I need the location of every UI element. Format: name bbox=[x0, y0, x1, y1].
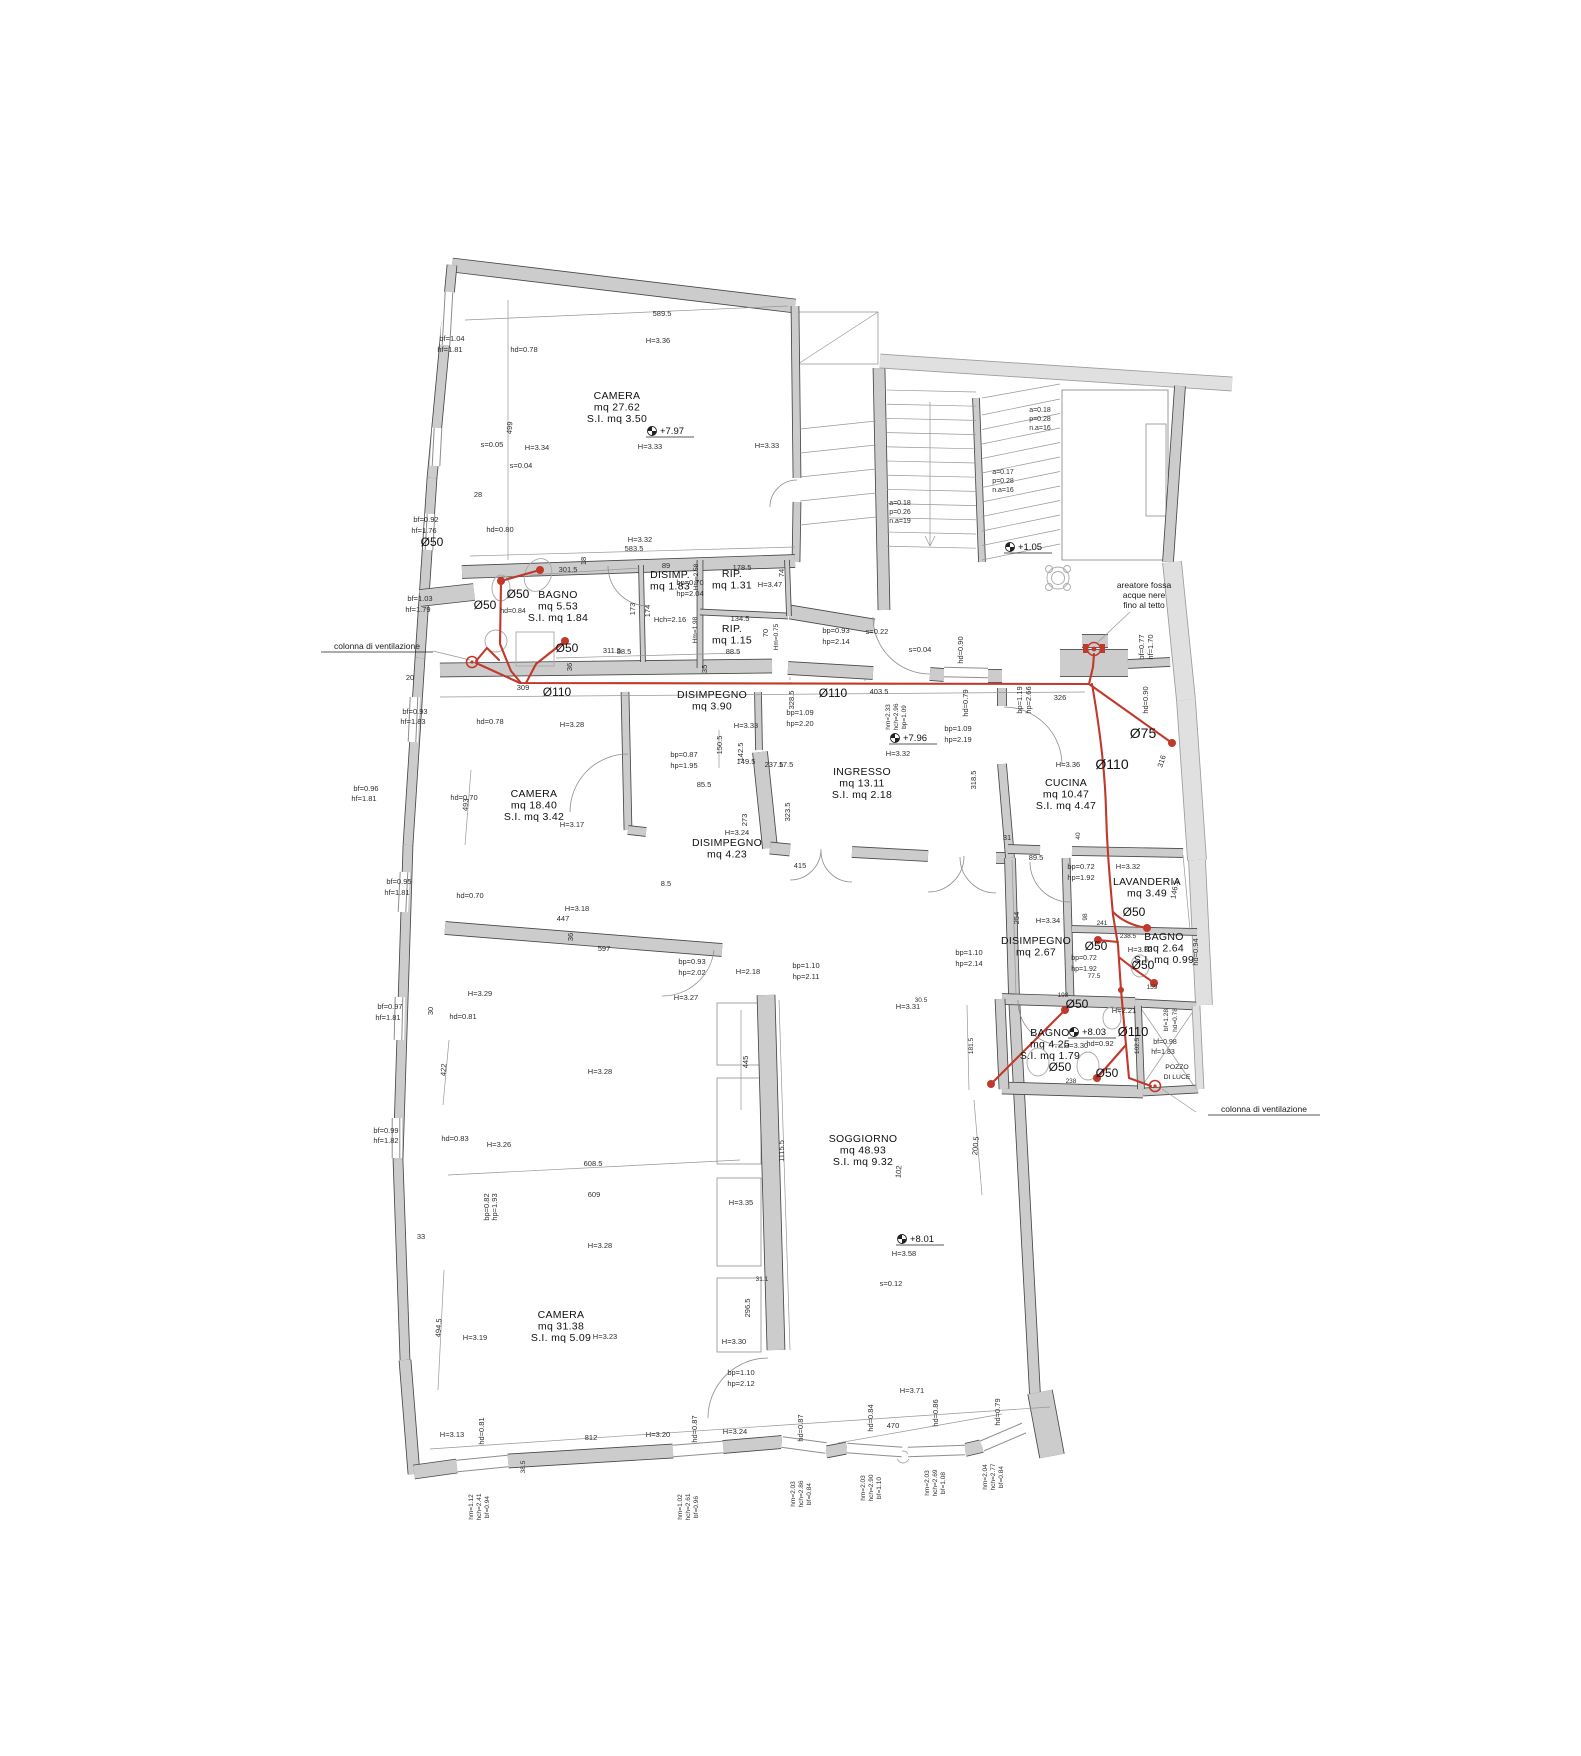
dim-label: 589.5 bbox=[653, 309, 672, 318]
wall-segment bbox=[1197, 860, 1204, 1005]
pipe-label: Ø75 bbox=[1130, 725, 1157, 741]
dim-label: n.a=16 bbox=[992, 487, 1014, 494]
room-label: S.I. mq 4.47 bbox=[1036, 800, 1096, 812]
dim-label: hp=2.66 bbox=[1024, 686, 1033, 713]
dim-label: 31 bbox=[1003, 833, 1011, 842]
dim-label: 326 bbox=[1054, 693, 1067, 702]
ramp-line bbox=[800, 493, 876, 501]
wall-segment bbox=[1008, 849, 1040, 850]
dim-label: a=0.17 bbox=[992, 469, 1014, 476]
wall-segment bbox=[1128, 662, 1170, 664]
stairs-layer bbox=[800, 384, 1060, 560]
floor-drain-ornament bbox=[1046, 566, 1071, 591]
door-swing bbox=[821, 851, 852, 882]
dim-label: Hm=1.98 bbox=[692, 616, 699, 643]
dim-label: H=3.19 bbox=[463, 1333, 487, 1342]
ramp-line bbox=[800, 517, 876, 525]
room-label: BAGNO bbox=[1144, 931, 1183, 943]
dim-label: bp=1.09 bbox=[901, 705, 908, 729]
dim-label: 30 bbox=[426, 1007, 435, 1015]
dim-label: 415 bbox=[794, 861, 807, 870]
dim-label: p=0.28 bbox=[1029, 416, 1051, 423]
stair-tread bbox=[982, 443, 1060, 459]
wall-segment bbox=[790, 612, 874, 626]
room-label: CAMERA bbox=[538, 1309, 585, 1321]
dim-label: Hch=2.16 bbox=[654, 615, 686, 624]
stair-tread bbox=[887, 546, 976, 548]
dim-label: H=3.23 bbox=[593, 1332, 617, 1341]
note-label: colonna di ventilazione bbox=[1221, 1104, 1307, 1114]
dimension-line bbox=[838, 1414, 1002, 1443]
dim-label: 146.5 bbox=[1168, 880, 1180, 900]
dim-label: H=3.47 bbox=[758, 580, 782, 589]
dim-label: H=3.28 bbox=[588, 1067, 612, 1076]
dim-label: hd=0.78 bbox=[476, 717, 503, 726]
dim-label: 422 bbox=[439, 1063, 449, 1076]
stair-tread bbox=[887, 404, 976, 406]
level-marker-icon bbox=[902, 1239, 907, 1244]
dimension-line bbox=[433, 651, 470, 660]
dim-label: bf=0.96 bbox=[693, 1496, 700, 1518]
dim-label: 403.5 bbox=[870, 687, 889, 696]
dim-label: hch=2.61 bbox=[685, 1493, 692, 1520]
room-label: mq 1.31 bbox=[712, 580, 752, 592]
pipe-label: Ø50 bbox=[1096, 1066, 1119, 1080]
dim-label: 200.5 bbox=[970, 1136, 981, 1155]
dim-label: hd=0.86 bbox=[931, 1399, 940, 1426]
wall-segment bbox=[420, 478, 432, 658]
dim-label: bp=1.10 bbox=[792, 961, 819, 970]
door-swing bbox=[928, 856, 964, 892]
note-label: areatore fossa bbox=[1117, 580, 1172, 590]
dim-label: 316 bbox=[1155, 754, 1167, 769]
dim-label: Hm=0.75 bbox=[773, 623, 780, 650]
stair-tread bbox=[887, 390, 976, 392]
dim-label: hd=0.90 bbox=[956, 636, 965, 663]
dim-label: p=0.26 bbox=[889, 509, 911, 516]
level-label: +7.97 bbox=[660, 426, 684, 437]
drain-branch bbox=[476, 648, 499, 661]
dim-label: hf=1.83 bbox=[1151, 1049, 1175, 1056]
wall-segment bbox=[795, 306, 797, 478]
ramp-line bbox=[800, 421, 876, 429]
fixture-connection bbox=[1168, 739, 1176, 747]
pipe-label: Ø50 bbox=[507, 587, 530, 601]
dim-label: hm=2.03 bbox=[924, 1470, 931, 1496]
dim-label: hp=2.02 bbox=[678, 968, 705, 977]
dim-label: H=3.32 bbox=[1128, 945, 1152, 954]
aerator-flange bbox=[1100, 644, 1105, 653]
dim-label: H=3.71 bbox=[900, 1386, 924, 1395]
dim-label: hd=0.79 bbox=[961, 689, 970, 716]
dim-label: H=3.30 bbox=[1064, 1041, 1088, 1050]
dim-label: hp=2.14 bbox=[822, 637, 849, 646]
dim-label: hf=1.81 bbox=[384, 888, 409, 897]
dim-label: 470 bbox=[887, 1421, 900, 1430]
pipe-label: Ø50 bbox=[1049, 1060, 1072, 1074]
dim-label: hd=0.83 bbox=[441, 1134, 468, 1143]
wall-segment bbox=[1135, 1003, 1196, 1006]
wall-niche bbox=[717, 1178, 761, 1266]
dim-label: 28 bbox=[474, 490, 482, 499]
dim-label: H=3.13 bbox=[440, 1430, 464, 1439]
dim-label: 445 bbox=[741, 1056, 750, 1069]
wall-segment bbox=[1196, 1006, 1200, 1089]
dim-label: hd=0.90 bbox=[1141, 686, 1150, 713]
dim-label: bf=0.99 bbox=[373, 1126, 398, 1135]
door-swing bbox=[960, 857, 996, 893]
dim-label: 17.5 bbox=[779, 760, 794, 769]
dim-label: hch=2.69 bbox=[932, 1469, 939, 1496]
wall-segment bbox=[445, 928, 722, 950]
ramp-line bbox=[800, 445, 876, 453]
dim-label: bp=0.72 bbox=[1071, 955, 1097, 962]
stair-tread bbox=[887, 475, 976, 477]
room-label: S.I. mq 9.32 bbox=[833, 1156, 893, 1168]
dim-label: 494.5 bbox=[434, 1318, 444, 1337]
dim-label: hd=0.94 bbox=[1191, 938, 1200, 965]
dim-label: 608.5 bbox=[584, 1159, 603, 1168]
fixture-connection bbox=[536, 566, 544, 574]
dim-label: 89.5 bbox=[1029, 853, 1044, 862]
dim-label: hp=1.95 bbox=[670, 761, 697, 770]
stair-tread bbox=[887, 447, 976, 449]
pipe-label: Ø50 bbox=[1132, 958, 1155, 972]
dim-label: 38.5 bbox=[520, 1460, 527, 1473]
dimension-line bbox=[1098, 612, 1130, 642]
dim-label: H=3.17 bbox=[560, 820, 584, 829]
wall-segment bbox=[976, 398, 982, 562]
room-label: DISIMPEGNO bbox=[1001, 935, 1071, 947]
dim-label: 301.5 bbox=[559, 565, 578, 574]
dim-label: hf=1.76 bbox=[411, 526, 436, 535]
pipe-label: Ø50 bbox=[474, 598, 497, 612]
door-swing bbox=[708, 1358, 768, 1418]
dim-label: H=2.18 bbox=[736, 967, 760, 976]
dim-label: 36 bbox=[565, 663, 574, 671]
ramp-line bbox=[800, 469, 876, 477]
door-leaf bbox=[1146, 424, 1166, 516]
dim-label: a=0.18 bbox=[1029, 407, 1051, 414]
dim-label: H=3.36 bbox=[1056, 760, 1080, 769]
dim-label: hp=2.19 bbox=[944, 735, 971, 744]
wall-segment bbox=[880, 361, 1232, 384]
vent-column-center bbox=[470, 660, 473, 663]
dim-label: hd=0.79 bbox=[993, 1398, 1002, 1425]
wall-niche bbox=[717, 1003, 761, 1065]
dim-label: s=0.04 bbox=[510, 461, 533, 470]
dim-label: H=3.30 bbox=[722, 1337, 746, 1346]
dimension-line bbox=[556, 653, 740, 658]
dim-label: bp=1.10 bbox=[727, 1368, 754, 1377]
dim-label: bf=0.97 bbox=[377, 1002, 402, 1011]
dim-label: a=0.18 bbox=[889, 500, 911, 507]
dim-label: H=3.24 bbox=[723, 1427, 747, 1436]
pozzo-label: DI LUCE bbox=[1164, 1074, 1191, 1081]
level-marker-icon bbox=[1070, 1028, 1075, 1033]
aerator-center bbox=[1092, 647, 1097, 652]
room-label: mq 5.53 bbox=[538, 601, 578, 613]
dim-label: H=3.35 bbox=[729, 1198, 753, 1207]
dim-label: H=3.20 bbox=[646, 1430, 670, 1439]
dim-label: H=3.36 bbox=[646, 336, 670, 345]
dim-label: hf=1.70 bbox=[1146, 634, 1155, 659]
dim-label: 296.5 bbox=[743, 1299, 752, 1318]
wall-segment bbox=[628, 830, 646, 832]
windows-layer bbox=[392, 292, 1026, 1472]
dim-label: bf=1.10 bbox=[876, 1477, 883, 1499]
dim-label: 18 bbox=[579, 557, 588, 565]
dim-label: bf=0.95 bbox=[386, 877, 411, 886]
dim-label: s=0.04 bbox=[909, 645, 932, 654]
dim-label: 89 bbox=[662, 561, 670, 570]
stair-tread bbox=[982, 515, 1060, 531]
dim-label: H=3.24 bbox=[725, 828, 749, 837]
dim-label: H=3.28 bbox=[588, 1241, 612, 1250]
dim-label: H=3.26 bbox=[487, 1140, 511, 1149]
dim-label: H=2.21 bbox=[1112, 1006, 1136, 1015]
room-label: BAGNO bbox=[538, 589, 577, 601]
wall-segment bbox=[1002, 764, 1010, 858]
dim-label: hch=2.96 bbox=[893, 703, 900, 730]
pipe-label: Ø110 bbox=[543, 685, 572, 699]
dim-label: 77.5 bbox=[1088, 973, 1101, 980]
room-label: mq 3.90 bbox=[692, 701, 732, 713]
dim-label: bf=0.96 bbox=[353, 784, 378, 793]
dim-label: hm=2.03 bbox=[860, 1475, 867, 1501]
pipe-label: Ø50 bbox=[556, 641, 579, 655]
dim-label: hch=2.90 bbox=[868, 1474, 875, 1501]
dim-label: hp=2.20 bbox=[786, 719, 813, 728]
dim-label: hm=2.33 bbox=[885, 704, 892, 730]
dim-label: hd=0.84 bbox=[500, 608, 526, 615]
wall-segment bbox=[723, 1442, 782, 1447]
dim-label: hd=0.84 bbox=[866, 1404, 875, 1431]
wall-segment bbox=[1186, 700, 1197, 860]
dim-label: 178.5 bbox=[733, 563, 752, 572]
dim-label: bf=0.98 bbox=[1153, 1039, 1177, 1046]
dim-label: hf=1.81 bbox=[375, 1013, 400, 1022]
dim-label: 447 bbox=[557, 914, 570, 923]
level-marker-icon bbox=[891, 734, 896, 739]
room-label: mq 3.49 bbox=[1127, 888, 1167, 900]
dim-label: hf=1.79 bbox=[405, 605, 430, 614]
stair-tread bbox=[887, 433, 976, 435]
wall-segment bbox=[414, 1466, 457, 1472]
dim-label: H=3.34 bbox=[525, 443, 549, 452]
dim-label: hch=2.77 bbox=[990, 1463, 997, 1490]
stair-tread bbox=[887, 489, 976, 491]
room-label: mq 13.11 bbox=[839, 778, 884, 790]
door-swing bbox=[570, 754, 628, 812]
wall-segment bbox=[788, 668, 873, 673]
dim-label: s=0.12 bbox=[880, 1279, 903, 1288]
dim-label: 31.1 bbox=[756, 1276, 769, 1283]
pipe-label: Ø50 bbox=[1066, 997, 1089, 1011]
room-label: S.I. mq 2.18 bbox=[832, 789, 892, 801]
dim-label: hf=1.81 bbox=[351, 794, 376, 803]
dim-label: hp=2.12 bbox=[727, 1379, 754, 1388]
dim-label: 254 bbox=[1012, 912, 1021, 925]
dim-label: 597 bbox=[598, 944, 611, 953]
dim-label: bp=1.09 bbox=[944, 724, 971, 733]
dim-label: bf=1.08 bbox=[940, 1472, 947, 1494]
dim-label: bf=0.94 bbox=[484, 1496, 491, 1518]
dimension-line bbox=[465, 306, 788, 320]
dim-label: hp=1.92 bbox=[1071, 966, 1097, 973]
dim-label: 8.5 bbox=[661, 879, 671, 888]
pipe-label: Ø110 bbox=[1118, 1024, 1149, 1039]
dim-label: hd=0.78 bbox=[510, 345, 537, 354]
dim-label: H=3.28 bbox=[560, 720, 584, 729]
dim-label: 33 bbox=[417, 1232, 425, 1241]
dim-label: s=0.05 bbox=[481, 440, 504, 449]
dim-label: 150.5 bbox=[715, 736, 724, 755]
dim-label: 134.5 bbox=[731, 614, 750, 623]
room-label: mq 4.23 bbox=[707, 849, 747, 861]
dim-label: 70 bbox=[761, 629, 770, 637]
aerator-flange bbox=[1083, 644, 1088, 653]
dim-label: s=0.22 bbox=[866, 627, 889, 636]
wall-segment bbox=[452, 265, 795, 306]
fixture-connection bbox=[497, 577, 505, 585]
dim-label: 102 bbox=[893, 1165, 903, 1178]
dim-label: hd=0.81 bbox=[449, 1012, 476, 1021]
dim-label: bf=1.03 bbox=[407, 594, 432, 603]
level-marker-icon bbox=[895, 738, 900, 743]
dim-label: hd=0.81 bbox=[477, 1417, 486, 1444]
dim-label: 40 bbox=[1075, 832, 1082, 840]
dim-label: 812 bbox=[585, 1433, 598, 1442]
wall-niche bbox=[717, 1078, 761, 1164]
room-label: SOGGIORNO bbox=[829, 1133, 898, 1145]
dim-label: 309 bbox=[517, 683, 530, 692]
wall-segment bbox=[408, 658, 420, 845]
dim-label: H=3.34 bbox=[1036, 916, 1060, 925]
dim-label: 98 bbox=[1082, 913, 1089, 921]
room-label: S.I. mq 3.50 bbox=[587, 413, 647, 425]
wall-segment bbox=[852, 852, 928, 856]
dim-label: hf=1.83 bbox=[400, 717, 425, 726]
dim-label: 35 bbox=[700, 665, 709, 673]
level-label: +1.05 bbox=[1018, 542, 1042, 553]
vent-column-center bbox=[1153, 1084, 1156, 1087]
floor-plan-drawing: CAMERAmq 27.62S.I. mq 3.50BAGNOmq 5.53S.… bbox=[0, 0, 1581, 1756]
dim-label: bf=0.84 bbox=[998, 1466, 1005, 1488]
floor-plan-page: CAMERAmq 27.62S.I. mq 3.50BAGNOmq 5.53S.… bbox=[0, 0, 1581, 1756]
dim-label: H=3.32 bbox=[1116, 862, 1140, 871]
wall-segment bbox=[965, 1446, 982, 1450]
dim-label: 174 bbox=[643, 605, 652, 618]
dim-label: 238 bbox=[1066, 1078, 1077, 1085]
dim-label: bf=0.84 bbox=[806, 1483, 813, 1505]
room-label: CAMERA bbox=[594, 390, 641, 402]
wall-segment bbox=[879, 368, 884, 610]
room-label: mq 27.62 bbox=[594, 402, 640, 414]
note-label: colonna di ventilazione bbox=[334, 641, 420, 651]
dim-label: Hm=2.58 bbox=[693, 563, 700, 590]
pipe-label: Ø110 bbox=[1095, 756, 1128, 772]
dim-label: hm=2.04 bbox=[982, 1464, 989, 1490]
wall-segment bbox=[826, 1448, 847, 1452]
level-marker-icon bbox=[1074, 1032, 1079, 1037]
dim-label: 142.5 bbox=[736, 743, 745, 762]
dim-label: H=3.58 bbox=[892, 1249, 916, 1258]
dim-label: hd=0.87 bbox=[796, 1414, 805, 1441]
walls-layer bbox=[398, 265, 1232, 1474]
dim-label: H=3.33 bbox=[638, 442, 662, 451]
room-label: BAGNO bbox=[1030, 1027, 1069, 1039]
dim-label: hp=1.92 bbox=[1067, 873, 1094, 882]
dim-label: hf=1.81 bbox=[437, 345, 462, 354]
wall-segment bbox=[1002, 1088, 1143, 1092]
dim-label: 88.5 bbox=[726, 647, 741, 656]
wall-segment bbox=[770, 848, 790, 850]
dim-label: 583.5 bbox=[625, 544, 644, 553]
dim-label: 318.5 bbox=[969, 771, 978, 790]
dim-label: 609 bbox=[588, 1190, 601, 1199]
door-swing bbox=[1004, 707, 1062, 765]
dim-label: 88.5 bbox=[617, 647, 632, 656]
level-label: +7.96 bbox=[903, 733, 927, 744]
dim-label: bp=1.10 bbox=[955, 948, 982, 957]
dim-label: hd=0.78 bbox=[1172, 1008, 1179, 1032]
room-label: mq 31.38 bbox=[538, 1321, 584, 1333]
dim-label: hm=1.12 bbox=[468, 1494, 475, 1520]
stair-tread bbox=[887, 532, 976, 534]
dim-label: H=3.31 bbox=[896, 1002, 920, 1011]
wall-segment bbox=[796, 502, 797, 562]
dim-label: hp=2.14 bbox=[955, 959, 982, 968]
level-marker-icon bbox=[898, 1235, 903, 1240]
dim-label: 198 bbox=[1058, 992, 1069, 999]
room-label: S.I. mq 3.42 bbox=[504, 811, 564, 823]
dim-label: 241 bbox=[1097, 920, 1108, 927]
dim-label: bp=0.93 bbox=[678, 957, 705, 966]
dim-label: 1115.5 bbox=[777, 1140, 786, 1162]
dim-label: hch=2.41 bbox=[476, 1493, 483, 1520]
level-label: +8.01 bbox=[910, 1234, 934, 1245]
dim-label: 238.5 bbox=[1120, 933, 1137, 940]
pipe-label: Ø50 bbox=[1085, 939, 1108, 953]
pozzo-label: POZZO bbox=[1165, 1064, 1188, 1071]
dim-label: 85.5 bbox=[697, 780, 712, 789]
dimension-line bbox=[440, 692, 1085, 697]
dim-label: 273 bbox=[740, 814, 749, 827]
dim-label: bf=1.28 bbox=[1163, 1009, 1170, 1031]
note-label: fino al tetto bbox=[1123, 600, 1165, 610]
room-label: RIP. bbox=[722, 623, 742, 635]
wall-segment bbox=[625, 692, 628, 830]
pipe-junction bbox=[1118, 987, 1124, 993]
dim-label: H=3.27 bbox=[674, 993, 698, 1002]
dim-label: hp=2.11 bbox=[793, 972, 820, 981]
stair-tread bbox=[887, 418, 976, 420]
dim-label: hm=1.02 bbox=[677, 1494, 684, 1520]
dim-label: 173 bbox=[628, 603, 637, 616]
stair-tread bbox=[887, 461, 976, 463]
wall-segment bbox=[766, 995, 776, 1350]
level-label: +8.03 bbox=[1082, 1027, 1106, 1038]
dim-label: bp=0.87 bbox=[670, 750, 697, 759]
dim-label: 36 bbox=[566, 933, 575, 941]
dim-label: 159 bbox=[1147, 984, 1158, 991]
wall-segment bbox=[1168, 386, 1180, 562]
wall-segment bbox=[1010, 858, 1014, 996]
dim-label: bf=1.04 bbox=[439, 334, 464, 343]
dim-label: hp=1.93 bbox=[490, 1193, 499, 1220]
dim-label: 328.5 bbox=[787, 691, 796, 710]
